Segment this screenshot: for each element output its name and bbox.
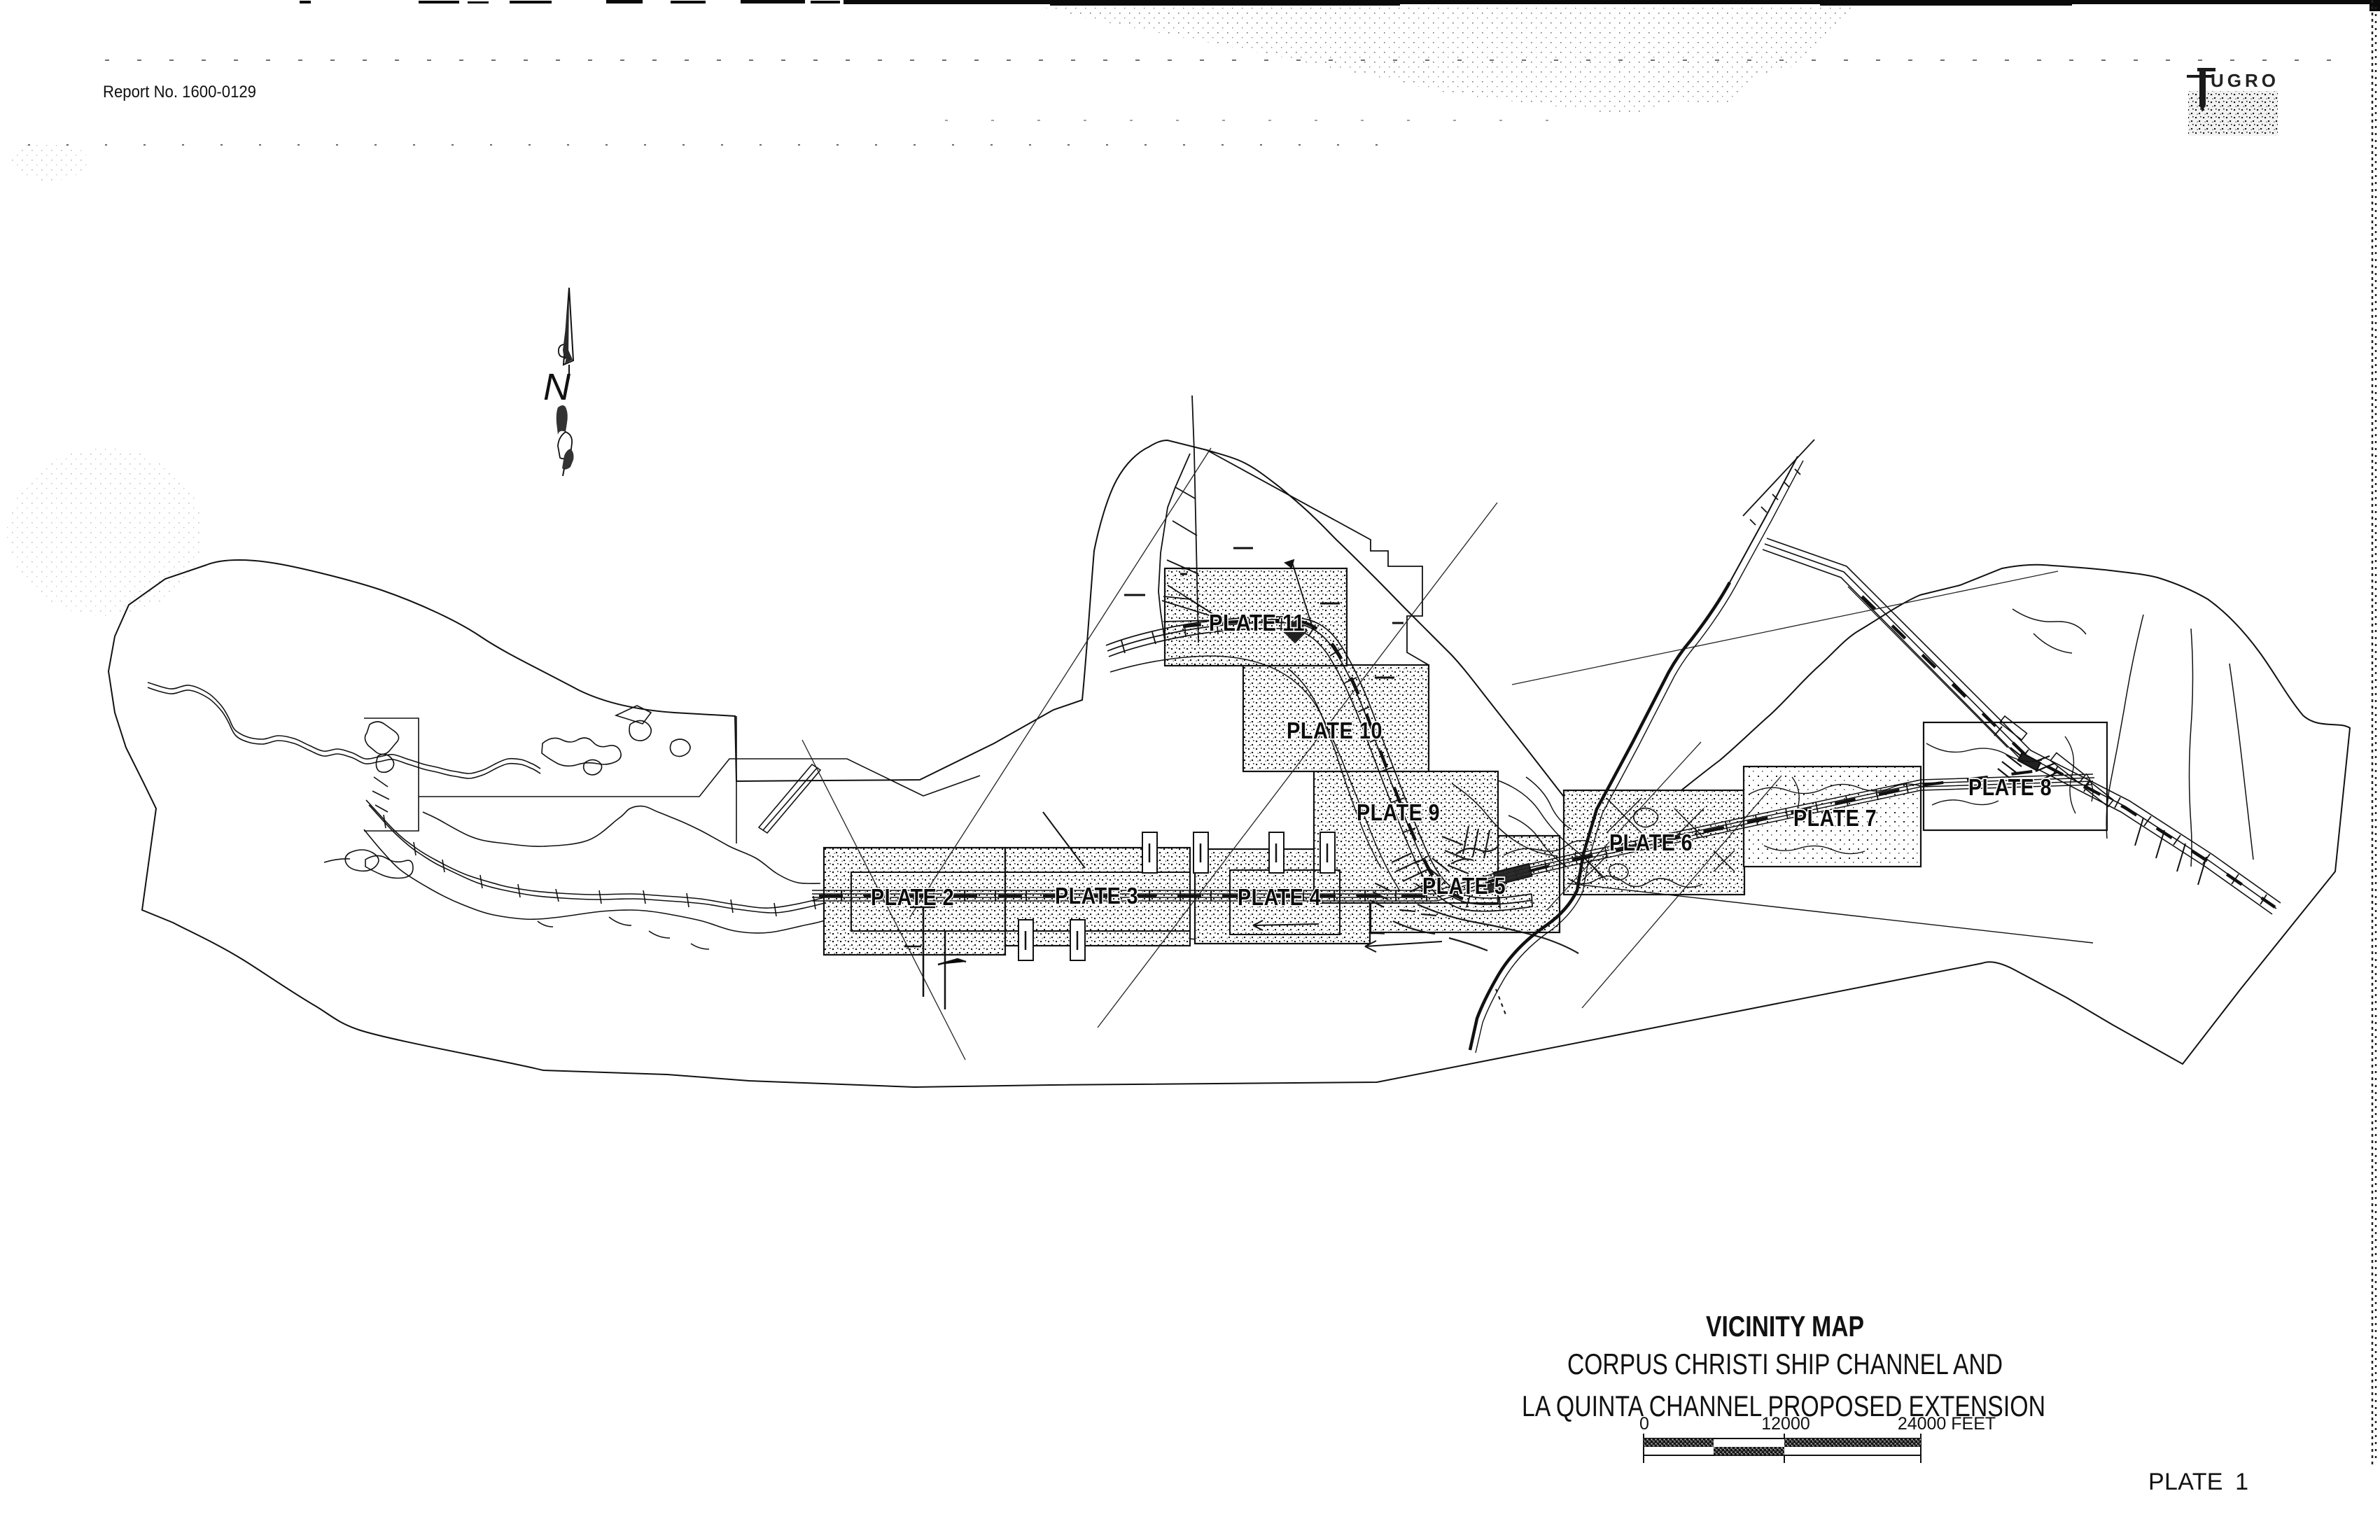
svg-text:12000: 12000 xyxy=(1761,1414,1810,1434)
svg-text:0: 0 xyxy=(1639,1414,1649,1434)
svg-text:PLATE 1: PLATE 1 xyxy=(2148,1469,2250,1495)
svg-text:PLATE 10: PLATE 10 xyxy=(1287,717,1382,743)
svg-text:24000 FEET: 24000 FEET xyxy=(1898,1414,1996,1434)
svg-text:PLATE 4: PLATE 4 xyxy=(1238,884,1321,910)
svg-text:N: N xyxy=(543,366,571,408)
svg-text:UGRO: UGRO xyxy=(2211,70,2279,91)
svg-text:PLATE 5: PLATE 5 xyxy=(1422,873,1506,899)
svg-text:PLATE 6: PLATE 6 xyxy=(1609,829,1693,855)
svg-text:CORPUS CHRISTI SHIP CHANNEL AN: CORPUS CHRISTI SHIP CHANNEL AND xyxy=(1567,1347,2003,1380)
svg-text:PLATE 9: PLATE 9 xyxy=(1357,799,1440,825)
svg-text:Report No. 1600-0129: Report No. 1600-0129 xyxy=(103,83,256,101)
svg-text:VICINITY MAP: VICINITY MAP xyxy=(1706,1310,1864,1343)
svg-text:PLATE 7: PLATE 7 xyxy=(1793,805,1877,831)
svg-text:PLATE 11: PLATE 11 xyxy=(1209,610,1305,636)
svg-text:PLATE 8: PLATE 8 xyxy=(1968,774,2052,800)
svg-text:PLATE 3: PLATE 3 xyxy=(1055,883,1138,909)
svg-text:PLATE 2: PLATE 2 xyxy=(871,884,954,910)
